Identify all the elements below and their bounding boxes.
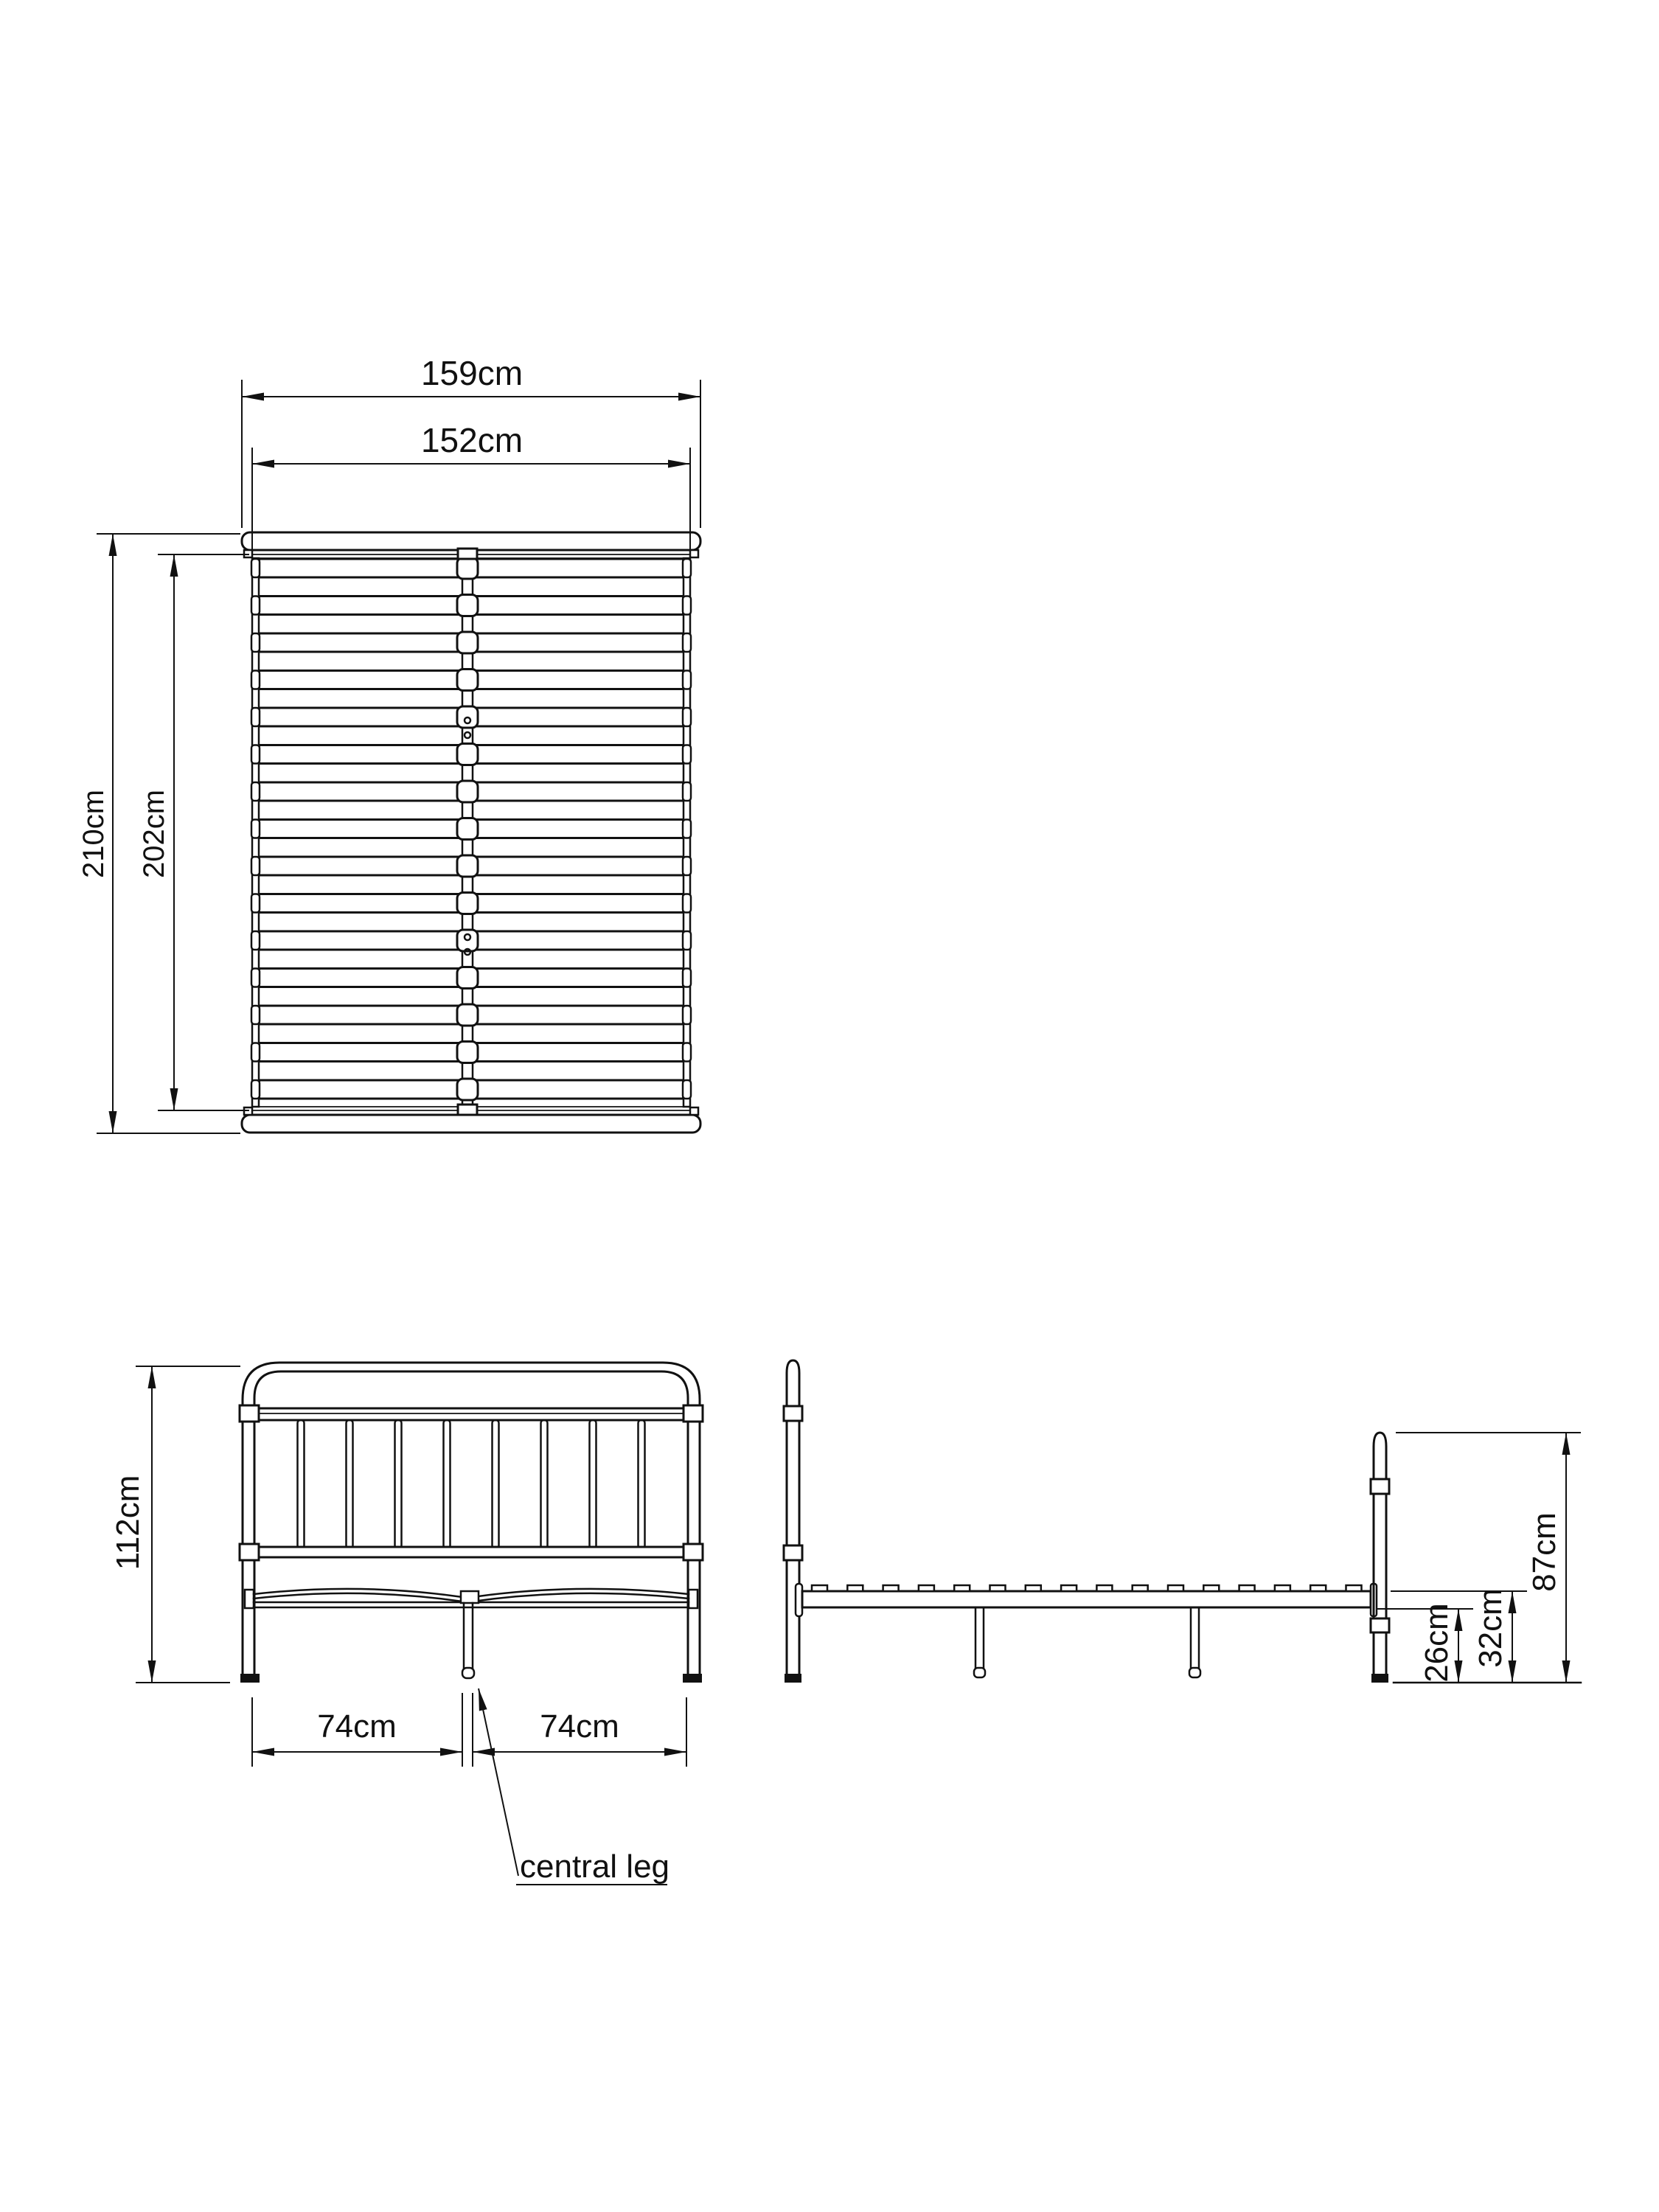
side-slat-tab <box>1275 1585 1290 1591</box>
plan-slat-cap <box>683 671 691 689</box>
side-slat-tab <box>919 1585 934 1591</box>
plan-slat-cap <box>251 1080 260 1099</box>
headboard-bar <box>639 1420 645 1548</box>
plan-slat-cap <box>683 1080 691 1099</box>
side-slat-tab <box>883 1585 899 1591</box>
plan-slat-cap <box>683 745 691 764</box>
side-post-connector <box>1371 1479 1389 1494</box>
plan-slat-connector <box>457 557 478 579</box>
side-post-connector <box>784 1545 802 1560</box>
headboard-bar <box>298 1420 305 1548</box>
headboard-bottom-rail <box>254 1547 688 1557</box>
bed-frame-technical-drawing: 159cm 152cm 210cm 202cm <box>0 0 1659 2212</box>
plan-slat-cap <box>251 820 260 838</box>
leg-foot <box>683 1674 702 1683</box>
side-slat-tab <box>1168 1585 1183 1591</box>
dim-label-outer-length: 210cm <box>77 790 110 878</box>
headboard-bar <box>444 1420 451 1548</box>
plan-slat-cap <box>683 1006 691 1024</box>
plan-slat-cap <box>251 782 260 801</box>
headboard-bars <box>298 1420 645 1548</box>
post-connector <box>240 1544 259 1560</box>
plan-center-rail-end <box>458 549 477 559</box>
side-post-foot <box>785 1674 801 1683</box>
plan-slat-cap <box>683 559 691 577</box>
plan-slats <box>251 557 691 1100</box>
side-slat-tab <box>1096 1585 1112 1591</box>
side-view: 26cm 32cm 87cm <box>784 1360 1581 1683</box>
plan-slat-cap <box>251 969 260 987</box>
plan-slat-cap <box>251 745 260 764</box>
plan-slat-cap <box>251 671 260 689</box>
side-slat-tab <box>954 1585 970 1591</box>
side-post-foot <box>1371 1674 1388 1683</box>
plan-slat-connector <box>457 781 478 802</box>
side-post-connector <box>784 1406 802 1421</box>
plan-slat-connector <box>457 632 478 653</box>
side-slat-tab <box>1026 1585 1041 1591</box>
post-connector <box>240 1405 259 1422</box>
curved-support <box>254 1593 462 1601</box>
plan-slat-connector <box>457 669 478 691</box>
plan-slat-cap <box>683 782 691 801</box>
plan-slat-cap <box>683 708 691 726</box>
dim-label-inner-length: 202cm <box>138 790 170 878</box>
side-slat-tab <box>847 1585 863 1591</box>
dim-label-platform: 32cm <box>1472 1588 1509 1668</box>
side-slat-tab <box>1133 1585 1148 1591</box>
side-slat-tab <box>1061 1585 1077 1591</box>
dim-label-right-half: 74cm <box>540 1708 619 1745</box>
plan-slat-connector <box>457 1004 478 1026</box>
plan-slat-cap <box>251 597 260 615</box>
plan-slat-cap <box>683 597 691 615</box>
plan-slat-connector <box>457 1042 478 1063</box>
callout-label: central leg <box>520 1848 669 1885</box>
plan-corner-tab <box>690 1107 698 1115</box>
center-bracket <box>461 1591 479 1603</box>
plan-slat-cap <box>251 894 260 913</box>
rail-bracket-left <box>245 1590 254 1608</box>
side-mid-legs <box>974 1607 1200 1677</box>
plan-slat-connector <box>457 818 478 840</box>
drawing-page: 159cm 152cm 210cm 202cm <box>0 0 1659 2212</box>
dim-front-height: 112cm <box>110 1366 240 1683</box>
plan-slat-connector <box>457 893 478 914</box>
side-slat-tab <box>1310 1585 1326 1591</box>
plan-slat-cap <box>683 1043 691 1062</box>
top-view: 159cm 152cm 210cm 202cm <box>77 354 700 1133</box>
plan-slat-cap <box>251 857 260 875</box>
post-connector <box>684 1544 703 1560</box>
plan-slat-connector <box>457 744 478 765</box>
dim-label-footboard-height: 87cm <box>1526 1512 1562 1592</box>
plan-slat-cap <box>251 1006 260 1024</box>
plan-slat-connector <box>457 1079 478 1100</box>
dim-half-widths: 74cm 74cm <box>252 1693 686 1767</box>
headboard-bar <box>395 1420 402 1548</box>
plan-slat-connector <box>457 855 478 877</box>
side-slat-tab <box>1346 1585 1362 1591</box>
dim-label-front-height: 112cm <box>110 1475 146 1571</box>
dim-label-outer-width: 159cm <box>421 354 523 392</box>
central-leg-foot <box>462 1668 474 1678</box>
dim-label-inner-width: 152cm <box>421 421 523 459</box>
side-footboard-post <box>1374 1433 1386 1674</box>
side-slat-tab <box>812 1585 827 1591</box>
plan-slat-connector <box>457 967 478 989</box>
plan-slat-cap <box>683 969 691 987</box>
plan-slat-cap <box>683 633 691 652</box>
plan-slat-cap <box>251 1043 260 1062</box>
plan-corner-tab <box>690 550 698 557</box>
dim-clearance: 26cm <box>1377 1603 1473 1683</box>
headboard-bar <box>590 1420 597 1548</box>
plan-slat-cap <box>251 559 260 577</box>
headboard-top-rail <box>254 1408 688 1420</box>
side-post-connector <box>1371 1618 1389 1632</box>
curved-support <box>473 1593 689 1601</box>
leg-foot <box>240 1674 260 1683</box>
front-view: 112cm 74cm 74cm central leg <box>110 1363 703 1885</box>
dim-label-clearance: 26cm <box>1419 1603 1455 1683</box>
headboard-bar <box>347 1420 353 1548</box>
dim-inner-length: 202cm <box>138 554 249 1110</box>
plan-slat-connector <box>457 595 478 616</box>
dim-label-left-half: 74cm <box>317 1708 397 1745</box>
plan-footboard-bar <box>242 1115 700 1133</box>
plan-headboard-bar <box>242 532 700 550</box>
rail-bracket-right <box>689 1590 698 1608</box>
headboard-bar <box>541 1420 548 1548</box>
post-connector <box>684 1405 703 1422</box>
side-slat-tab <box>1239 1585 1255 1591</box>
plan-slat-cap <box>251 931 260 950</box>
side-slat-tab <box>990 1585 1006 1591</box>
plan-slat-cap <box>683 820 691 838</box>
headboard-bar <box>493 1420 499 1548</box>
plan-center-rail-end <box>458 1105 477 1115</box>
side-slat-tab <box>1203 1585 1219 1591</box>
side-rail <box>802 1591 1371 1607</box>
plan-slat-cap <box>251 633 260 652</box>
plan-slat-cap <box>683 931 691 950</box>
plan-slat-cap <box>683 857 691 875</box>
plan-slat-cap <box>251 708 260 726</box>
plan-slat-cap <box>683 894 691 913</box>
